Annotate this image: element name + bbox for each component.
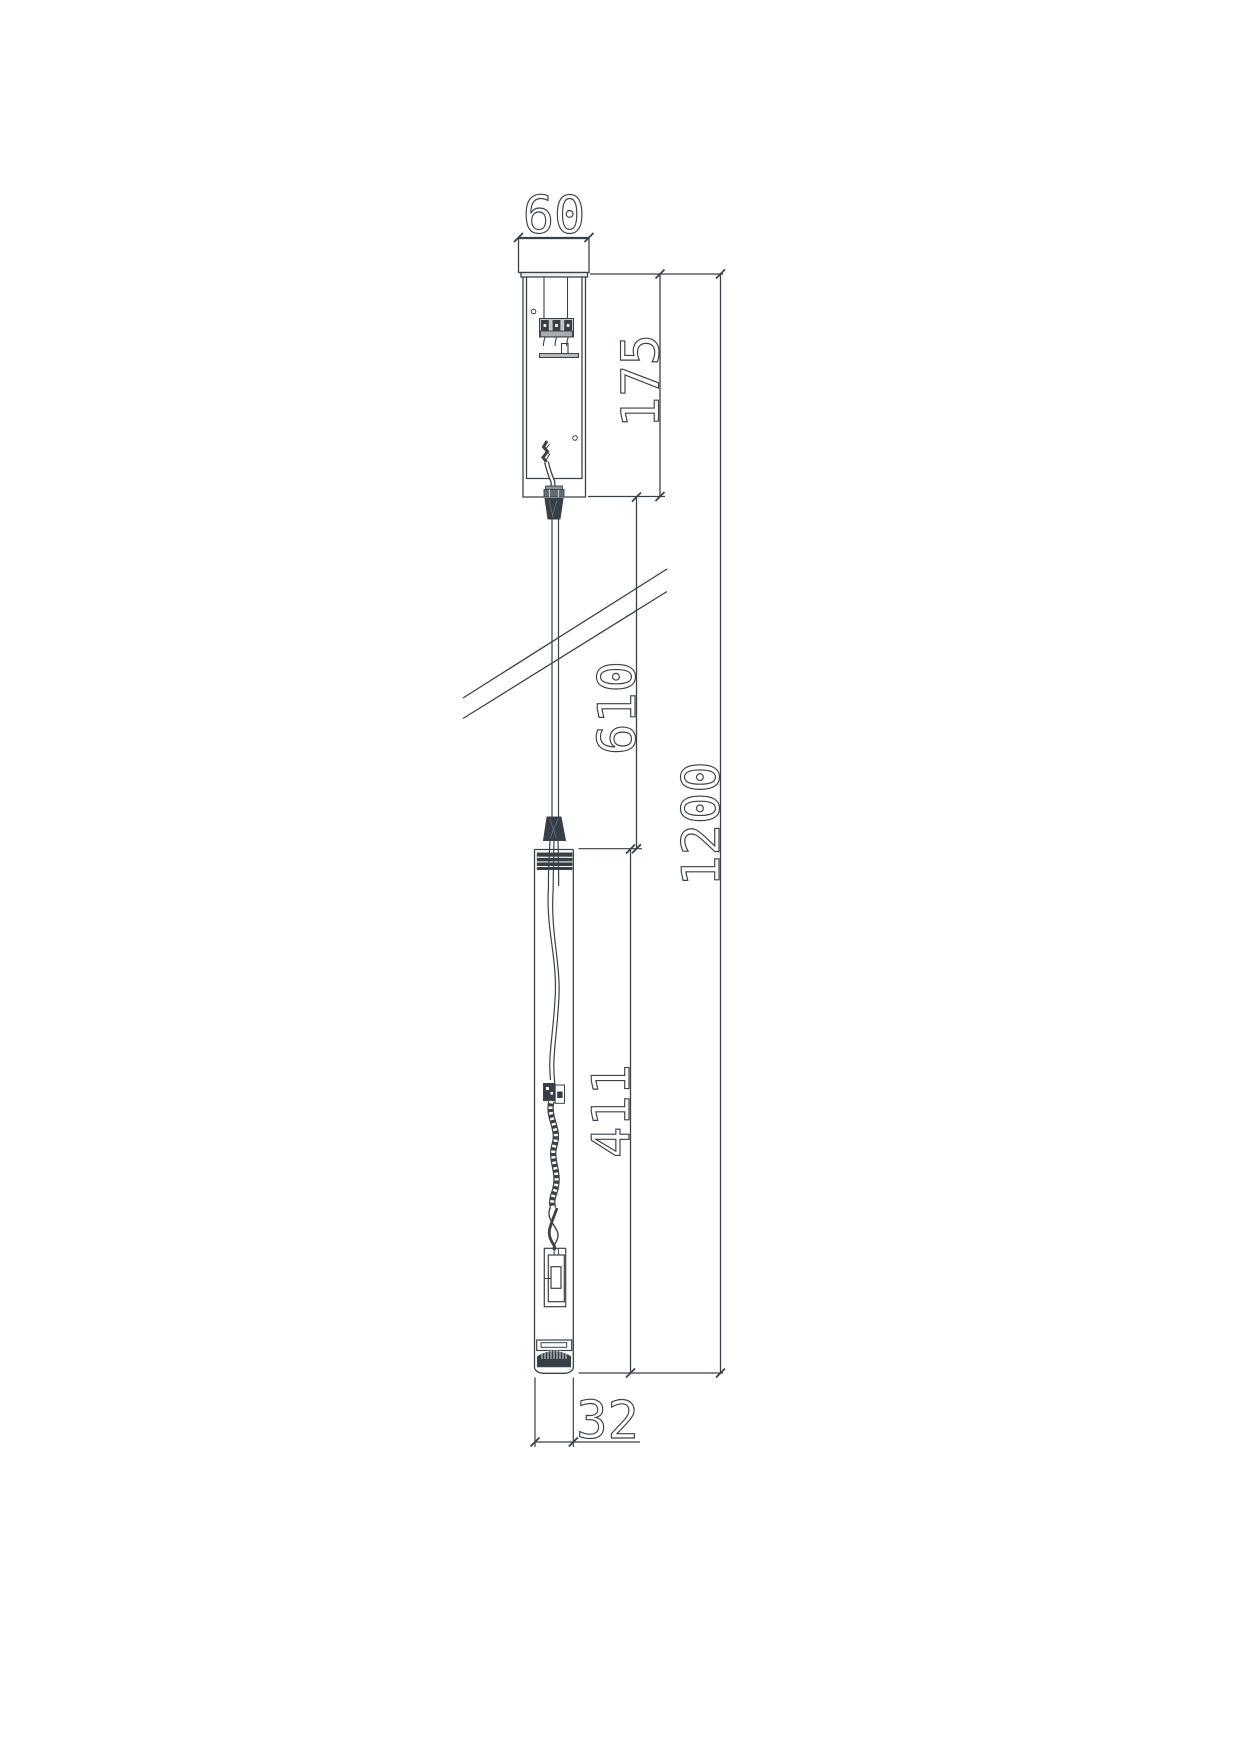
tube-wire-tail-2 (553, 841, 554, 890)
tube-hanger-block (537, 853, 573, 871)
gland-washer (546, 486, 563, 490)
terminal-1-slot (544, 324, 547, 327)
screw-hole-lower-icon (573, 436, 578, 441)
driver-module-window (551, 1267, 561, 1289)
terminal-3-slot (567, 324, 570, 327)
cable-gland (544, 486, 564, 519)
suspension-cable (552, 519, 559, 817)
dimension-canopy-width: 60 (514, 186, 594, 246)
dim-label-overall-height: 1200 (672, 761, 732, 886)
terminal-2-slot (555, 324, 558, 327)
twisted-pair-wire (549, 1101, 558, 1250)
driver-box (523, 277, 586, 519)
dim-label-lamp-length: 411 (582, 1064, 642, 1158)
dimension-overall-height: 1200 (672, 270, 732, 1378)
dim-label-canopy-width: 60 (523, 186, 586, 246)
connector-plug (544, 1084, 556, 1101)
screw-hole-upper-icon (531, 309, 536, 314)
dimension-suspension-drop: 610 (588, 493, 648, 854)
dimension-canopy-height: 175 (612, 270, 672, 502)
drawing-canvas: 60 175 610 411 1200 (0, 0, 1241, 1754)
driver-module (544, 1248, 565, 1306)
driver-box-inner-wall (527, 277, 583, 479)
pendant-tube (535, 841, 574, 1374)
connector-plug-pin-2 (551, 1092, 554, 1095)
tube-wire-tail-3 (558, 841, 559, 887)
bracket-bar (540, 354, 579, 358)
tube-wires (548, 841, 559, 1084)
dimension-drawing: 60 175 610 411 1200 (0, 0, 1241, 1754)
driver-module-outer (544, 1248, 565, 1306)
dim-label-suspension-drop: 610 (588, 661, 648, 755)
bottom-led-assembly (535, 1340, 574, 1373)
dimension-lamp-length: 411 (582, 845, 642, 1378)
canopy-flange (521, 273, 588, 278)
tube-strain-relief (544, 817, 566, 841)
terminal-block (540, 319, 574, 347)
connector-plug-pin-1 (546, 1087, 549, 1090)
mounting-bracket (540, 344, 579, 358)
diffuser-bottom-edge (535, 1369, 574, 1374)
inline-connector (544, 1084, 565, 1104)
led-holder-slot (541, 1343, 567, 1348)
dimension-lamp-width: 32 (531, 1378, 641, 1452)
terminal-block-base (541, 331, 573, 337)
dim-label-lamp-width: 32 (576, 1391, 639, 1451)
gland-boot (545, 499, 563, 520)
internal-lead (543, 441, 553, 487)
dim-label-canopy-height: 175 (612, 334, 672, 428)
terminal-tail-1 (543, 337, 545, 346)
terminal-tail-2 (555, 337, 557, 346)
connector-socket-contact (557, 1092, 562, 1099)
gland-nut (544, 490, 564, 498)
